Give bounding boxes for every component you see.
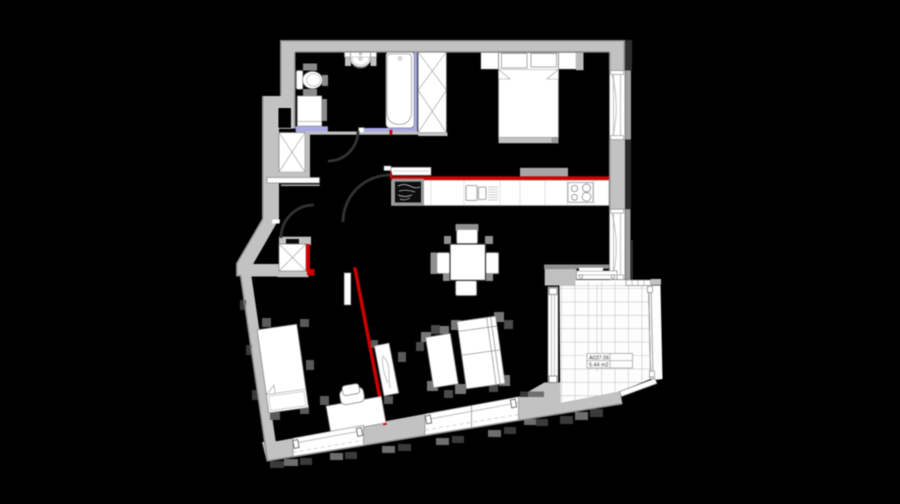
svg-text:5.44 m2: 5.44 m2 bbox=[589, 363, 608, 369]
svg-text:A037.06: A037.06 bbox=[589, 355, 609, 361]
